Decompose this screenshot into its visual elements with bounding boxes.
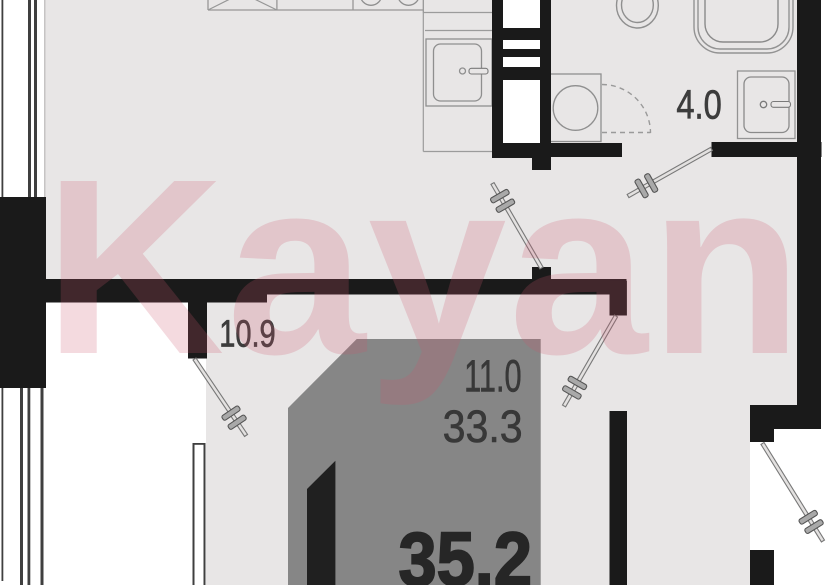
svg-text:Kayan: Kayan <box>44 127 804 406</box>
svg-text:35.2: 35.2 <box>399 518 533 585</box>
svg-text:4.0: 4.0 <box>676 82 721 128</box>
svg-text:33.3: 33.3 <box>443 401 523 452</box>
